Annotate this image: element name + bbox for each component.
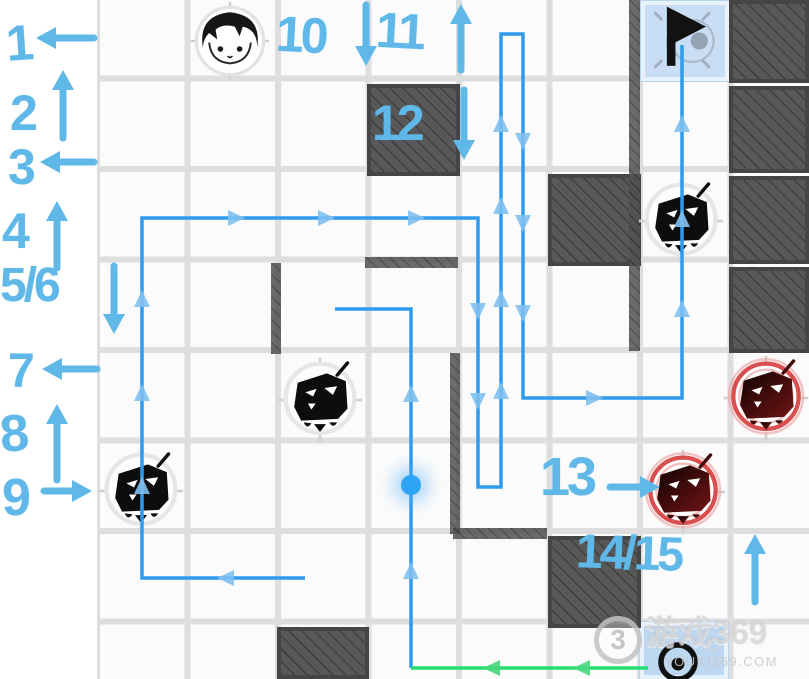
- player-character-icon[interactable]: [190, 1, 270, 81]
- move-label-7: 7: [8, 348, 32, 396]
- move-label-8: 8: [0, 407, 28, 461]
- move-label-12: 12: [372, 98, 422, 148]
- move-arrow-left: [36, 27, 94, 49]
- wall-block: [729, 267, 809, 353]
- enemy-black-icon[interactable]: [638, 178, 724, 264]
- move-label-5-6: 5/6: [0, 262, 58, 310]
- move-label-3: 3: [8, 142, 33, 192]
- wall-block: [729, 176, 809, 264]
- enemy-black-icon[interactable]: [277, 357, 363, 443]
- move-label-9: 9: [2, 472, 28, 524]
- thin-wall-v: [271, 263, 281, 354]
- watermark-subtitle: YOUXI369.COM: [664, 654, 778, 669]
- move-label-4: 4: [2, 206, 27, 256]
- move-arrow-up: [52, 70, 74, 138]
- move-label-10: 10: [275, 9, 327, 62]
- move-label-1: 1: [4, 17, 32, 69]
- watermark-text: 游戏369 PH YOUXI369.COM: [646, 616, 778, 669]
- current-position-dot: [401, 475, 421, 495]
- move-label-13: 13: [540, 450, 594, 504]
- watermark: 3 游戏369 PH YOUXI369.COM: [594, 616, 778, 669]
- move-arrow-left: [42, 358, 97, 380]
- thin-wall-v: [450, 353, 460, 534]
- goal-flag-icon[interactable]: [643, 0, 727, 83]
- enemy-red-icon[interactable]: [723, 355, 809, 441]
- move-label-14-15: 14/15: [575, 528, 682, 580]
- move-label-2: 2: [10, 88, 35, 138]
- move-arrow-left: [40, 151, 94, 173]
- move-arrow-up: [46, 404, 68, 480]
- game-stage: 12345/67891011121314/15 3 游戏369 PH YOUXI…: [0, 0, 809, 679]
- wall-block: [548, 174, 641, 266]
- watermark-badge: 3: [594, 616, 642, 664]
- move-arrow-right: [44, 480, 92, 502]
- move-arrow-up: [46, 201, 68, 268]
- move-label-11: 11: [375, 5, 424, 57]
- watermark-title: 游戏369: [646, 616, 778, 649]
- thin-wall-h: [453, 528, 547, 539]
- enemy-red-icon[interactable]: [640, 449, 726, 535]
- enemy-black-icon[interactable]: [98, 448, 184, 534]
- wall-block: [729, 0, 809, 83]
- wall-block: [729, 86, 809, 173]
- thin-wall-v: [629, 0, 640, 351]
- wall-block: [277, 627, 369, 679]
- thin-wall-h: [365, 257, 458, 268]
